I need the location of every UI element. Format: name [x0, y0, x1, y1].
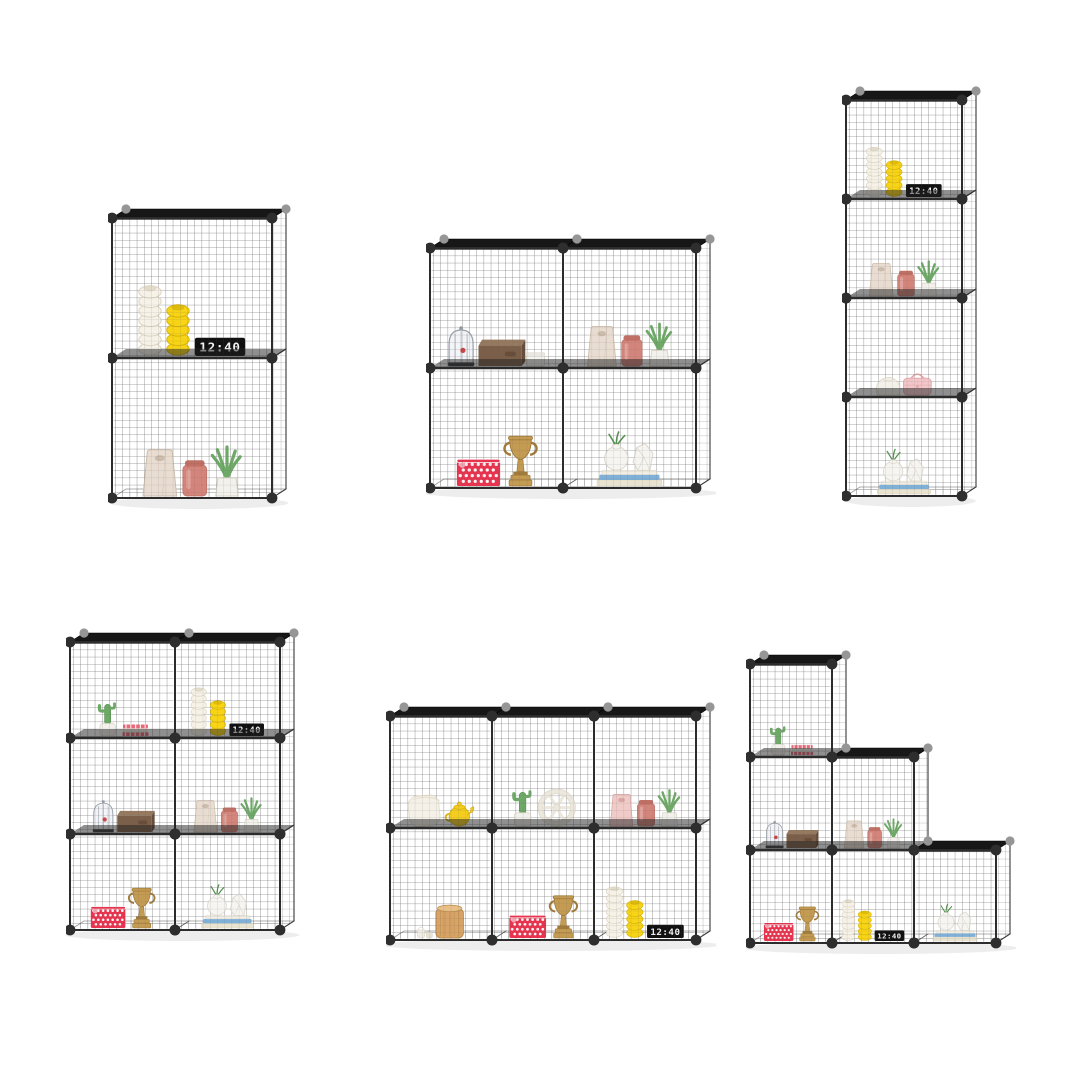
connector-ball	[957, 95, 968, 106]
cube-cell	[66, 825, 189, 935]
connector-ball	[558, 483, 569, 494]
connector-ball	[589, 711, 600, 722]
connector-ball	[827, 752, 838, 763]
cube-cell	[426, 359, 577, 493]
shelf-unit-2x3: 12:40	[66, 628, 300, 944]
connector-ball	[170, 733, 181, 744]
shelf-unit-graphic	[426, 234, 716, 502]
cube-cell: 12:40	[842, 86, 981, 204]
cube-cell	[426, 234, 582, 373]
cube-cell	[842, 190, 976, 303]
connector-ball	[275, 733, 286, 744]
connector-ball	[991, 845, 1002, 856]
cube-cell	[589, 702, 715, 833]
shelf-unit-graphic: 12:40	[842, 86, 982, 510]
connector-ball	[487, 823, 498, 834]
connector-ball	[558, 363, 569, 374]
connector-ball	[691, 935, 702, 946]
connector-ball	[589, 823, 600, 834]
connector-ball	[691, 363, 702, 374]
connector-ball	[589, 935, 600, 946]
shelf-unit-4-tower: 12:40	[842, 86, 982, 510]
shelf-unit-graphic: 12:40	[746, 650, 1016, 957]
connector-ball	[487, 935, 498, 946]
connector-ball	[827, 659, 838, 670]
connector-ball	[267, 353, 278, 364]
connector-ball	[691, 823, 702, 834]
shelf-unit-graphic: 12:40	[108, 204, 292, 512]
connector-ball	[275, 637, 286, 648]
connector-ball	[957, 491, 968, 502]
cube-cell	[66, 729, 189, 839]
shelf-unit-graphic: 12:40	[386, 702, 716, 954]
connector-ball	[827, 938, 838, 949]
cube-cell: 12:40	[589, 819, 710, 945]
product-image-canvas: 12:40 12:40 12:40 12:40 12:40	[0, 0, 1080, 1080]
cube-cell	[909, 836, 1015, 948]
cube-cell: 12:40	[827, 841, 928, 948]
connector-ball	[691, 483, 702, 494]
cube-cell	[170, 729, 294, 839]
connector-ball	[275, 925, 286, 936]
shelf-unit-staircase: 12:40	[746, 650, 1016, 957]
connector-ball	[957, 194, 968, 205]
connector-ball	[691, 243, 702, 254]
cube-cell	[487, 819, 608, 945]
cube-cell	[842, 388, 976, 501]
connector-ball	[909, 845, 920, 856]
connector-ball	[267, 213, 278, 224]
cube-cell	[170, 825, 294, 935]
shelf-unit-3x2: 12:40	[386, 702, 716, 954]
cube-cell	[842, 289, 976, 402]
cube-cell	[827, 743, 933, 855]
connector-ball	[909, 752, 920, 763]
cube-cell	[746, 650, 851, 762]
shelf-unit-2x2	[426, 234, 716, 502]
connector-ball	[991, 938, 1002, 949]
connector-ball	[909, 938, 920, 949]
cube-cell	[108, 349, 286, 503]
cube-cell: 12:40	[108, 204, 291, 363]
connector-ball	[170, 925, 181, 936]
connector-ball	[170, 829, 181, 840]
shelf-unit-graphic: 12:40	[66, 628, 300, 944]
connector-ball	[558, 243, 569, 254]
connector-ball	[691, 711, 702, 722]
cube-cell	[558, 234, 715, 373]
connector-ball	[957, 293, 968, 304]
connector-ball	[957, 392, 968, 403]
connector-ball	[267, 493, 278, 504]
connector-ball	[170, 637, 181, 648]
connector-ball	[827, 845, 838, 856]
cube-cell	[558, 359, 710, 493]
connector-ball	[487, 711, 498, 722]
shelf-unit-2-stack: 12:40	[108, 204, 292, 512]
cube-cell: 12:40	[170, 628, 299, 743]
connector-ball	[275, 829, 286, 840]
cube-cell	[386, 819, 506, 945]
